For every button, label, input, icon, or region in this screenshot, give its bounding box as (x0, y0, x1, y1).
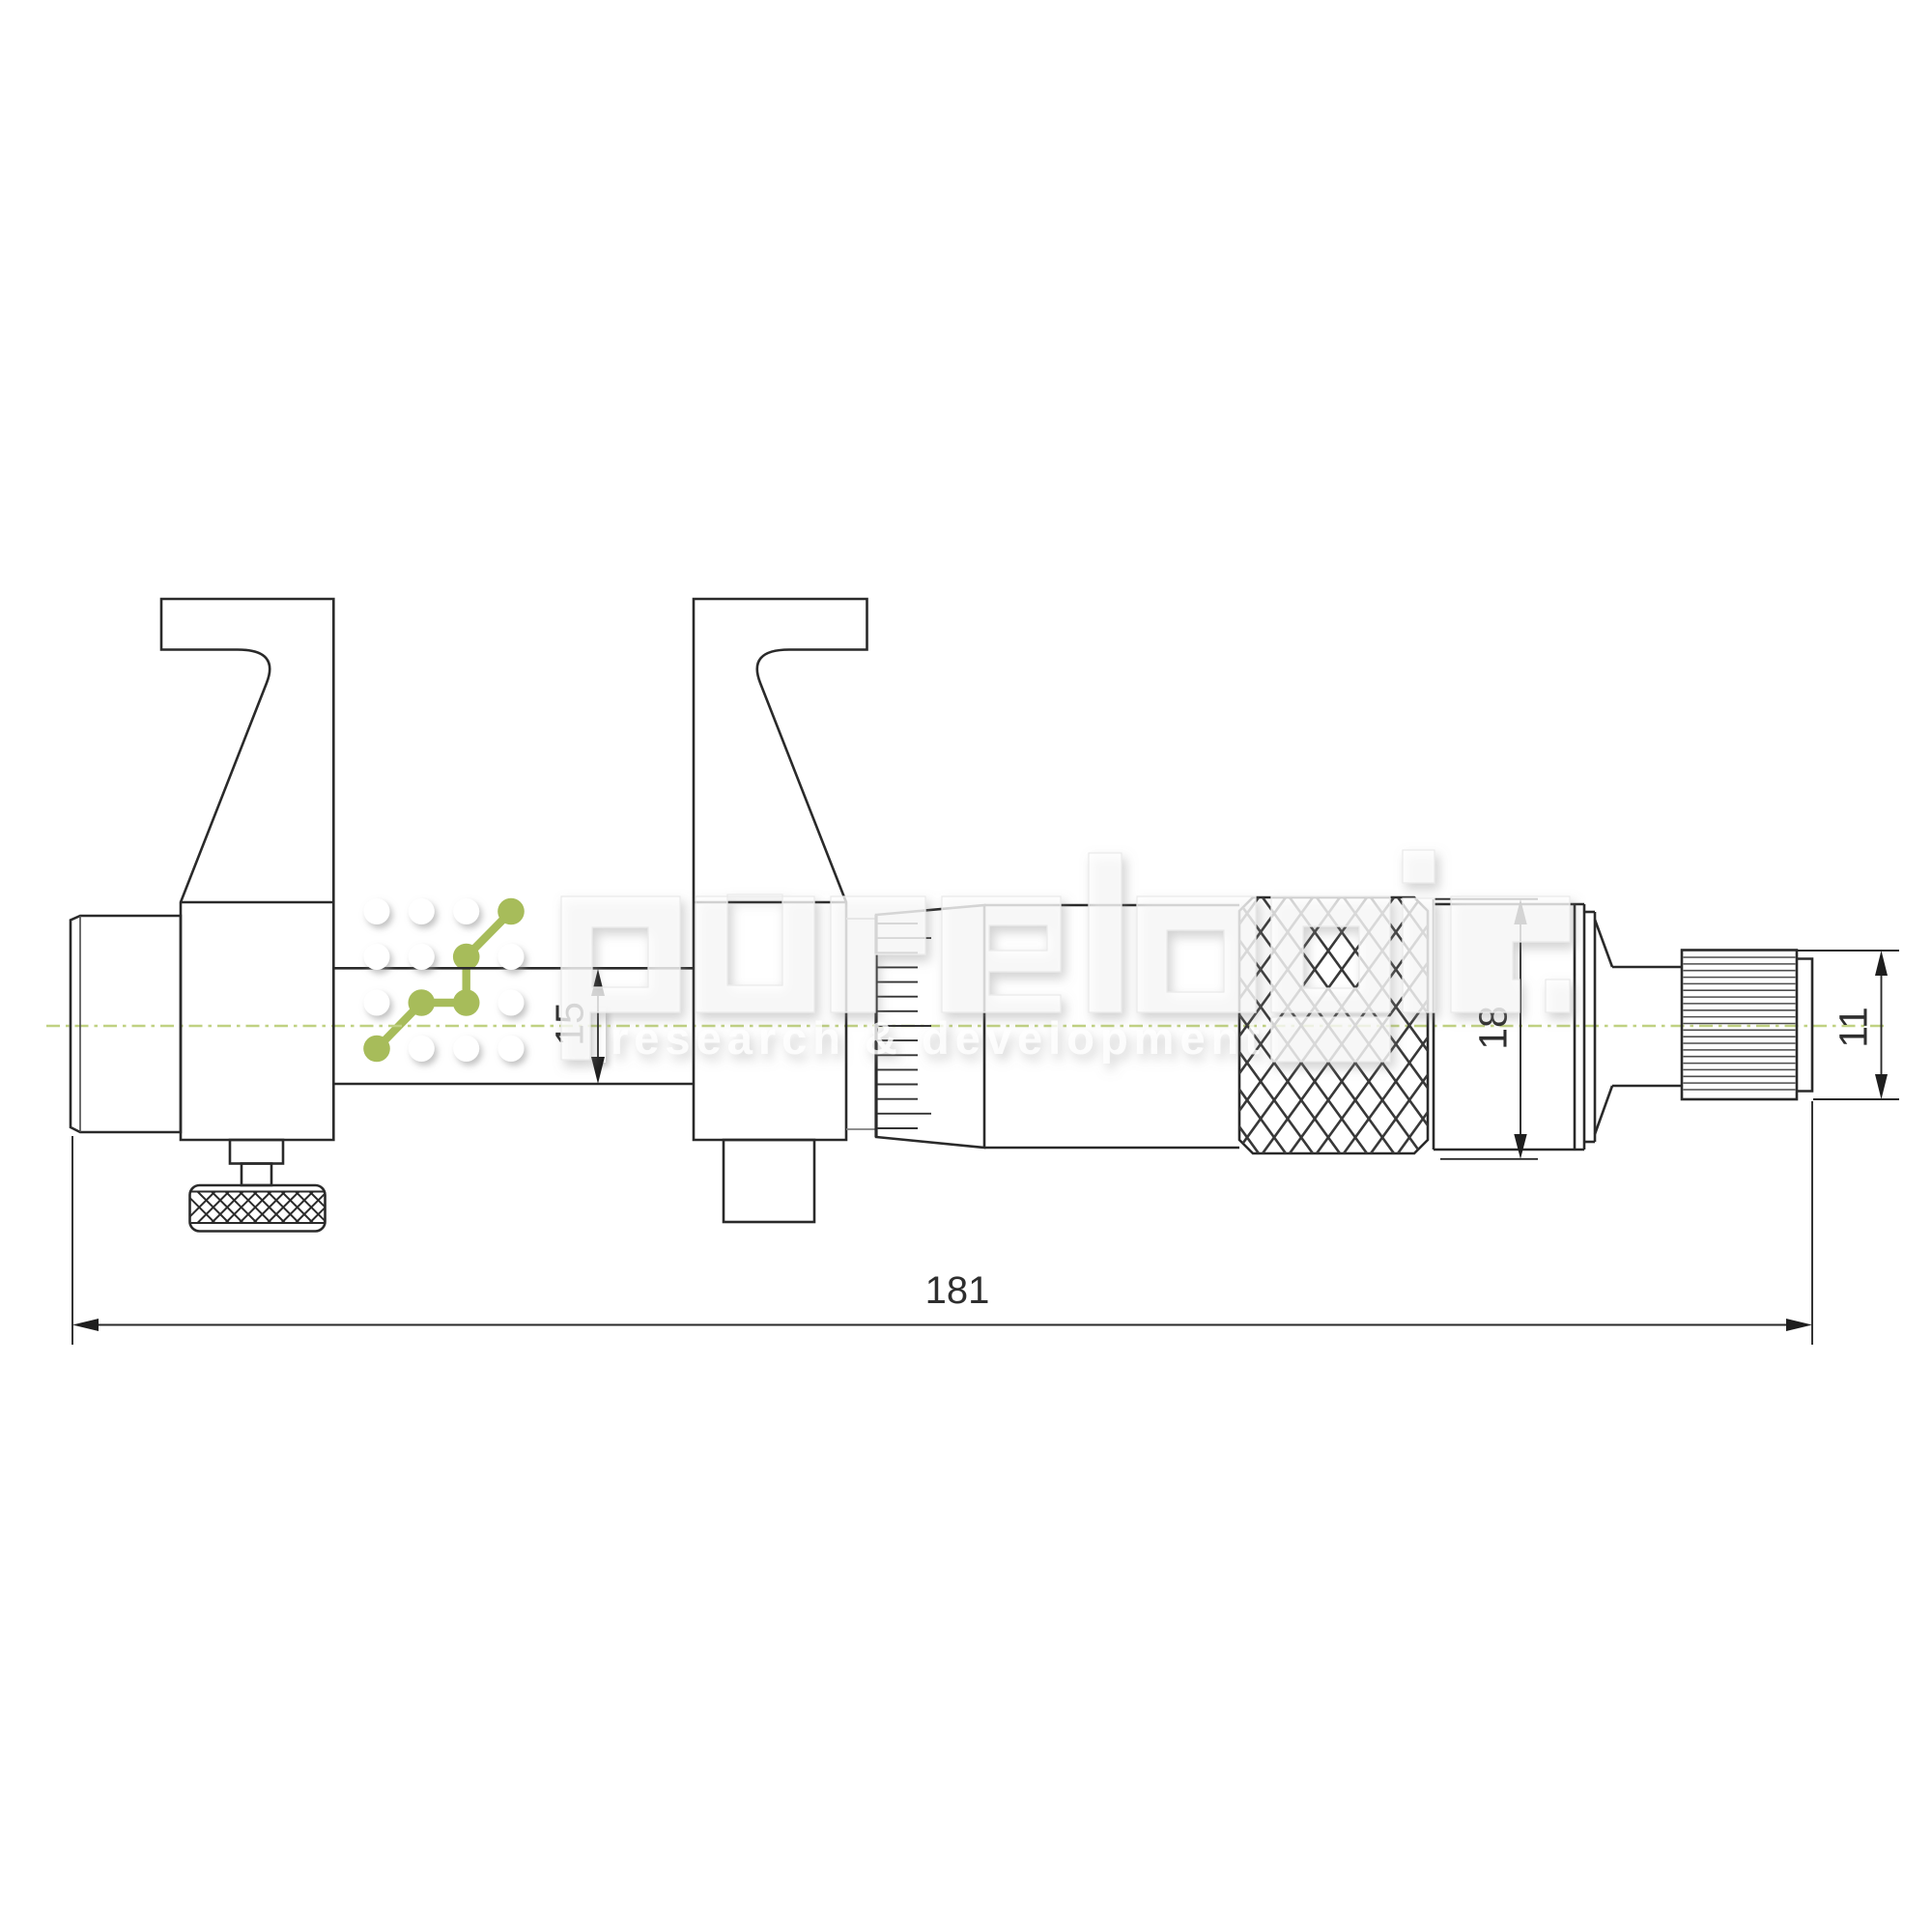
svg-text:181: 181 (925, 1269, 990, 1312)
svg-text:research & development: research & development (611, 1012, 1265, 1064)
svg-text:11: 11 (1832, 1007, 1876, 1048)
